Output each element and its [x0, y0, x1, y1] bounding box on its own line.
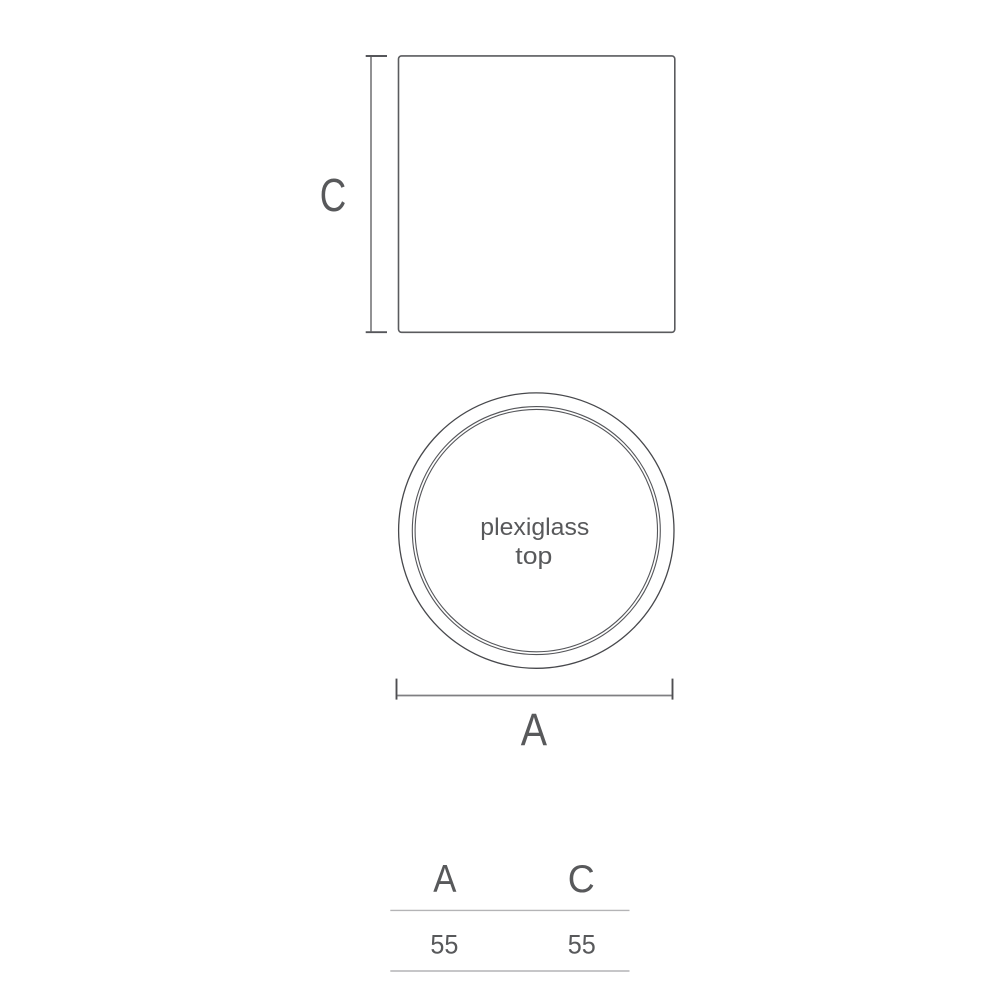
svg-text:55: 55 — [430, 929, 458, 959]
svg-text:55: 55 — [568, 929, 596, 959]
svg-text:top: top — [515, 543, 552, 570]
svg-text:A: A — [433, 858, 456, 901]
svg-text:C: C — [568, 858, 595, 901]
svg-text:plexiglass: plexiglass — [480, 514, 589, 541]
svg-text:C: C — [320, 169, 347, 221]
svg-text:A: A — [521, 704, 548, 755]
